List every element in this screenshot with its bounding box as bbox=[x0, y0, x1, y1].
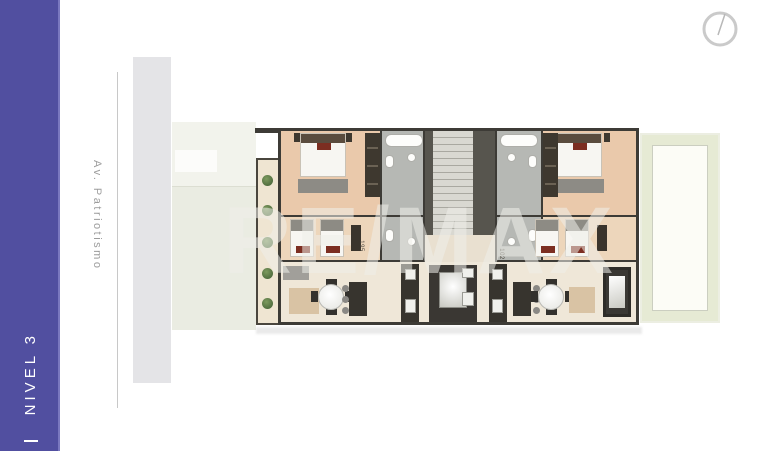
level-label: NIVEL 3 bbox=[16, 312, 44, 436]
level-dash bbox=[24, 440, 38, 442]
nightstand bbox=[346, 133, 352, 142]
toilet bbox=[528, 155, 537, 168]
bar-stool bbox=[342, 307, 349, 314]
bed-pillow bbox=[317, 143, 331, 150]
street-label: Av. Patriotismo bbox=[86, 150, 108, 280]
neighbor-building bbox=[133, 57, 171, 383]
nightstand bbox=[294, 133, 300, 142]
bed-headboard bbox=[557, 134, 601, 143]
brand-watermark: RE/MAX bbox=[180, 182, 660, 300]
kitchen-appliance bbox=[492, 299, 503, 313]
bar-stool bbox=[533, 307, 540, 314]
bed-headboard bbox=[301, 134, 345, 143]
bathtub bbox=[385, 134, 423, 147]
rooftop-equipment bbox=[175, 150, 217, 172]
sink bbox=[407, 153, 416, 162]
level-label-text: NIVEL 3 bbox=[22, 332, 39, 415]
sink bbox=[507, 153, 516, 162]
building-shadow bbox=[256, 327, 642, 334]
toilet bbox=[385, 155, 394, 168]
floor-plan-page: NIVEL 3 Av. Patriotismo bbox=[0, 0, 768, 451]
bed-pillow bbox=[573, 143, 587, 150]
bathtub bbox=[500, 134, 538, 147]
kitchen-appliance bbox=[405, 299, 416, 313]
nightstand bbox=[604, 133, 610, 142]
street-label-text: Av. Patriotismo bbox=[91, 160, 103, 270]
street-divider-line bbox=[117, 72, 118, 408]
bed bbox=[556, 133, 602, 177]
north-compass-icon bbox=[700, 8, 740, 48]
bed bbox=[300, 133, 346, 177]
